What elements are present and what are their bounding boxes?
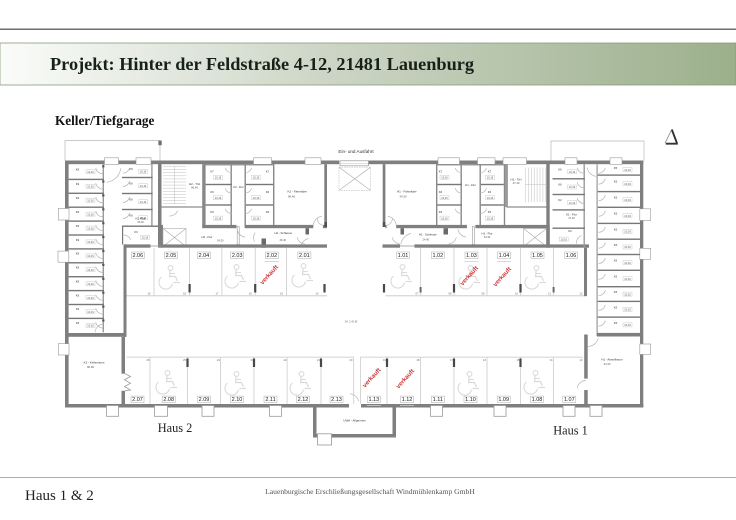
- svg-text:Keller/Tiefgarage: Keller/Tiefgarage: [55, 113, 155, 128]
- svg-text:34,30: 34,30: [400, 194, 407, 198]
- svg-text:K2 - Kellerraum: K2 - Kellerraum: [84, 361, 105, 365]
- svg-text:3H 2,45 lB: 3H 2,45 lB: [345, 320, 358, 324]
- svg-text:30,30: 30,30: [137, 220, 144, 224]
- svg-text:K9: K9: [76, 182, 80, 186]
- svg-text:K6: K6: [129, 167, 133, 171]
- svg-text:2.05: 2.05: [166, 253, 177, 259]
- svg-text:K9: K9: [76, 279, 80, 283]
- svg-text:K6: K6: [558, 183, 562, 187]
- svg-text:10,16: 10,16: [624, 245, 631, 249]
- svg-text:K9: K9: [76, 168, 80, 172]
- svg-text:H2 - TrH: H2 - TrH: [189, 182, 200, 186]
- svg-text:K6: K6: [129, 214, 133, 218]
- svg-text:K5: K5: [614, 290, 618, 294]
- svg-text:2.02: 2.02: [266, 253, 277, 259]
- svg-text:10,16: 10,16: [624, 323, 631, 327]
- svg-text:10,16: 10,16: [441, 216, 448, 220]
- svg-text:10,16: 10,16: [253, 196, 260, 200]
- svg-text:10,16: 10,16: [487, 216, 494, 220]
- svg-text:K6: K6: [210, 190, 214, 194]
- svg-text:10,16: 10,16: [87, 226, 94, 230]
- svg-text:2.03: 2.03: [232, 253, 243, 259]
- svg-text:2.06: 2.06: [132, 253, 143, 259]
- svg-text:K9: K9: [76, 252, 80, 256]
- svg-text:K5: K5: [614, 166, 618, 170]
- svg-text:K9: K9: [76, 307, 80, 311]
- svg-text:10,16: 10,16: [441, 175, 448, 179]
- svg-text:96,90: 96,90: [87, 365, 94, 369]
- svg-text:K5: K5: [614, 243, 618, 247]
- svg-text:K7: K7: [488, 169, 492, 173]
- svg-text:1.02: 1.02: [432, 253, 443, 259]
- svg-text:H1 - Fahrräder: H1 - Fahrräder: [397, 190, 417, 194]
- svg-text:10,16: 10,16: [569, 170, 576, 174]
- svg-text:10,16: 10,16: [87, 296, 94, 300]
- svg-text:K6: K6: [558, 168, 562, 172]
- svg-text:K5: K5: [614, 228, 618, 232]
- svg-text:K7: K7: [266, 169, 270, 173]
- svg-text:K5: K5: [614, 275, 618, 279]
- svg-text:10,16: 10,16: [87, 254, 94, 258]
- svg-text:1.06: 1.06: [566, 253, 577, 259]
- svg-text:Haus 2: Haus 2: [158, 421, 193, 435]
- svg-text:2.11: 2.11: [265, 397, 275, 403]
- svg-text:Haus 1: Haus 1: [553, 423, 588, 437]
- svg-text:10,16: 10,16: [561, 237, 568, 241]
- svg-text:47,40: 47,40: [568, 216, 575, 220]
- svg-text:K9: K9: [76, 266, 80, 270]
- svg-text:K5: K5: [439, 210, 443, 214]
- svg-text:10,16: 10,16: [253, 216, 260, 220]
- svg-text:K3: K3: [134, 230, 138, 234]
- svg-text:10,16: 10,16: [487, 175, 494, 179]
- svg-text:10,16: 10,16: [140, 184, 147, 188]
- svg-text:H1 - Abstellraum: H1 - Abstellraum: [601, 358, 623, 362]
- svg-text:K2: K2: [568, 229, 572, 233]
- svg-text:10,16: 10,16: [624, 214, 631, 218]
- svg-text:K6: K6: [439, 190, 443, 194]
- svg-text:10,16: 10,16: [215, 175, 222, 179]
- svg-text:2.13: 2.13: [331, 397, 342, 403]
- svg-text:K5: K5: [614, 196, 618, 200]
- svg-text:H1 - Schleuse: H1 - Schleuse: [419, 232, 437, 236]
- svg-text:10,16: 10,16: [87, 324, 94, 328]
- svg-text:K6: K6: [129, 182, 133, 186]
- svg-text:10,16: 10,16: [487, 196, 494, 200]
- svg-text:H2 - Flur: H2 - Flur: [202, 235, 213, 239]
- svg-text:2.07: 2.07: [132, 397, 143, 403]
- svg-text:10,16: 10,16: [87, 199, 94, 203]
- svg-text:10,16: 10,16: [142, 236, 149, 240]
- svg-text:UWA - Allgemein: UWA - Allgemein: [343, 419, 366, 423]
- svg-text:47,40: 47,40: [513, 181, 520, 185]
- svg-text:10,16: 10,16: [140, 169, 147, 173]
- svg-text:10,16: 10,16: [87, 170, 94, 174]
- svg-text:K7: K7: [439, 169, 443, 173]
- svg-text:10,16: 10,16: [87, 268, 94, 272]
- svg-text:K6: K6: [488, 190, 492, 194]
- svg-text:24,40: 24,40: [423, 238, 430, 242]
- svg-text:1.04: 1.04: [499, 253, 510, 259]
- svg-text:Projekt: Hinter der Feldstraße: Projekt: Hinter der Feldstraße 4-12, 214…: [50, 54, 474, 74]
- svg-text:H1 - Flur: H1 - Flur: [482, 232, 493, 236]
- svg-text:K9: K9: [76, 210, 80, 214]
- svg-text:Haus 1 & 2: Haus 1 & 2: [25, 488, 94, 504]
- svg-text:10,16: 10,16: [624, 168, 631, 172]
- svg-text:K2 - Flur: K2 - Flur: [233, 185, 243, 189]
- svg-text:34,30: 34,30: [604, 362, 611, 366]
- svg-text:10,16: 10,16: [569, 185, 576, 189]
- svg-text:1.07: 1.07: [564, 397, 575, 403]
- svg-text:1.10: 1.10: [465, 397, 476, 403]
- svg-text:10,16: 10,16: [87, 185, 94, 189]
- svg-text:K5: K5: [614, 321, 618, 325]
- svg-text:10,16: 10,16: [215, 216, 222, 220]
- svg-text:2.08: 2.08: [163, 397, 174, 403]
- svg-text:K9: K9: [76, 321, 80, 325]
- svg-text:1.05: 1.05: [532, 253, 543, 259]
- svg-text:K7: K7: [210, 169, 214, 173]
- svg-text:K6: K6: [266, 190, 270, 194]
- svg-text:10,16: 10,16: [441, 196, 448, 200]
- svg-text:10,16: 10,16: [624, 308, 631, 312]
- svg-text:1.03: 1.03: [466, 253, 477, 259]
- svg-text:2.10: 2.10: [232, 397, 243, 403]
- svg-text:34,30: 34,30: [217, 239, 224, 243]
- svg-text:10,16: 10,16: [624, 230, 631, 234]
- svg-text:K5: K5: [614, 305, 618, 309]
- svg-text:K5: K5: [614, 180, 618, 184]
- svg-text:H2 - Schleuse: H2 - Schleuse: [275, 231, 293, 235]
- svg-text:10,16: 10,16: [624, 198, 631, 202]
- svg-text:2.01: 2.01: [299, 253, 310, 259]
- svg-text:10,16: 10,16: [624, 292, 631, 296]
- svg-text:1.08: 1.08: [532, 397, 543, 403]
- svg-text:2.12: 2.12: [298, 397, 309, 403]
- svg-text:1.11: 1.11: [433, 397, 443, 403]
- svg-text:10,16: 10,16: [87, 212, 94, 216]
- svg-text:K2: K2: [558, 198, 562, 202]
- svg-text:46,40: 46,40: [280, 238, 287, 242]
- svg-text:Ein- und Ausfahrt: Ein- und Ausfahrt: [338, 149, 374, 154]
- svg-text:K5: K5: [614, 259, 618, 263]
- svg-text:K5: K5: [614, 212, 618, 216]
- svg-text:Lauenburgische Erschließungsge: Lauenburgische Erschließungsgesellschaft…: [265, 487, 475, 496]
- svg-text:H1 - Flur: H1 - Flur: [465, 183, 476, 187]
- svg-text:96,40: 96,40: [191, 186, 198, 190]
- svg-text:1.13: 1.13: [368, 397, 379, 403]
- svg-text:1.01: 1.01: [398, 253, 409, 259]
- svg-text:1.09: 1.09: [498, 397, 509, 403]
- svg-text:10,16: 10,16: [140, 200, 147, 204]
- svg-text:10,16: 10,16: [215, 196, 222, 200]
- svg-text:H1 - TrH: H1 - TrH: [511, 178, 522, 182]
- svg-text:34,30: 34,30: [484, 235, 491, 239]
- svg-text:1.12: 1.12: [402, 397, 413, 403]
- svg-text:10,16: 10,16: [624, 182, 631, 186]
- svg-text:10,16: 10,16: [624, 261, 631, 265]
- svg-text:10,16: 10,16: [87, 240, 94, 244]
- svg-text:K9: K9: [76, 238, 80, 242]
- svg-text:2.09: 2.09: [199, 397, 210, 403]
- svg-text:K5: K5: [266, 210, 270, 214]
- svg-text:K6: K6: [129, 198, 133, 202]
- svg-text:10,16: 10,16: [569, 201, 576, 205]
- svg-text:K2 - Fahrräder: K2 - Fahrräder: [288, 190, 308, 194]
- svg-text:K9: K9: [76, 224, 80, 228]
- svg-text:10,16: 10,16: [253, 175, 260, 179]
- svg-text:10,16: 10,16: [87, 282, 94, 286]
- svg-text:K9: K9: [76, 196, 80, 200]
- svg-text:10,16: 10,16: [87, 310, 94, 314]
- svg-text:K9: K9: [76, 293, 80, 297]
- svg-text:K5: K5: [210, 210, 214, 214]
- svg-text:K5: K5: [488, 210, 492, 214]
- svg-text:10,16: 10,16: [624, 277, 631, 281]
- svg-text:2.04: 2.04: [199, 253, 210, 259]
- svg-text:96,46: 96,46: [288, 194, 295, 198]
